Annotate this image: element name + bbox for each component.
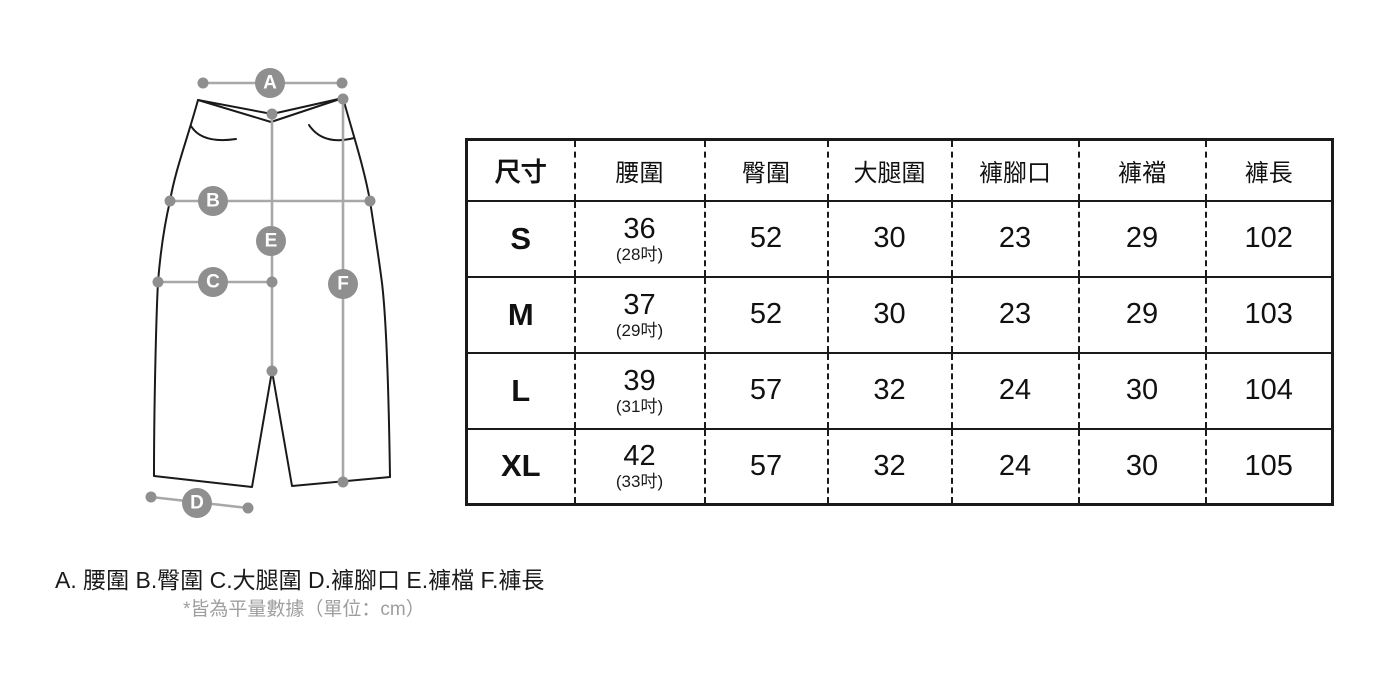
cell-length: 103: [1206, 277, 1333, 353]
cell-waist: 36 (28吋): [575, 201, 705, 277]
cell-waist: 42 (33吋): [575, 429, 705, 505]
measure-endpoint-dot: [337, 78, 348, 89]
marker-d-icon: D: [182, 488, 212, 518]
marker-d-label: D: [190, 493, 204, 514]
measure-endpoint-dot: [165, 196, 176, 207]
measure-endpoint-dot: [153, 277, 164, 288]
cell-waist: 37 (29吋): [575, 277, 705, 353]
cell-hip: 57: [705, 429, 828, 505]
waist-inch-value: (31吋): [576, 397, 704, 416]
measure-endpoint-dot: [146, 492, 157, 503]
cell-hip: 52: [705, 201, 828, 277]
pants-measurement-diagram: A B C D E F: [135, 58, 405, 520]
cell-size: S: [467, 201, 575, 277]
measure-endpoint-dot: [243, 503, 254, 514]
cell-thigh: 32: [828, 429, 952, 505]
marker-a-icon: A: [255, 68, 285, 98]
waist-cm-value: 39: [576, 366, 704, 397]
cell-hip: 57: [705, 353, 828, 429]
cell-crotch: 30: [1079, 353, 1206, 429]
column-header-leg-opening: 褲腳口: [952, 140, 1079, 201]
cell-waist: 39 (31吋): [575, 353, 705, 429]
cell-leg-opening: 23: [952, 277, 1079, 353]
cell-size: M: [467, 277, 575, 353]
table-row-m: M 37 (29吋) 52 30 23 29 103: [467, 277, 1333, 353]
measure-endpoint-dot: [338, 477, 349, 488]
right-pocket-curve: [309, 125, 354, 140]
marker-c-icon: C: [198, 267, 228, 297]
measurement-legend: A. 腰圍 B.臀圍 C.大腿圍 D.褲腳口 E.褲檔 F.褲長: [55, 561, 544, 595]
column-header-hip: 臀圍: [705, 140, 828, 201]
column-header-waist: 腰圍: [575, 140, 705, 201]
table-row-l: L 39 (31吋) 57 32 24 30 104: [467, 353, 1333, 429]
cell-crotch: 29: [1079, 277, 1206, 353]
measure-endpoint-dot: [198, 78, 209, 89]
cell-hip: 52: [705, 277, 828, 353]
cell-length: 102: [1206, 201, 1333, 277]
marker-b-icon: B: [198, 186, 228, 216]
cell-length: 105: [1206, 429, 1333, 505]
size-chart-table: 尺寸 腰圍 臀圍 大腿圍 褲腳口 褲襠 褲長 S 36 (28吋) 52 30 …: [465, 138, 1334, 506]
cell-thigh: 30: [828, 201, 952, 277]
left-pocket-curve: [191, 126, 236, 140]
marker-c-label: C: [206, 272, 220, 293]
measure-endpoint-dot: [365, 196, 376, 207]
cell-leg-opening: 24: [952, 429, 1079, 505]
waist-inch-value: (28吋): [576, 245, 704, 264]
waist-cm-value: 42: [576, 441, 704, 472]
marker-e-label: E: [265, 231, 278, 252]
column-header-crotch: 褲襠: [1079, 140, 1206, 201]
waist-cm-value: 37: [576, 290, 704, 321]
cell-size: XL: [467, 429, 575, 505]
marker-f-icon: F: [328, 269, 358, 299]
marker-f-label: F: [337, 274, 349, 295]
cell-thigh: 30: [828, 277, 952, 353]
cell-leg-opening: 23: [952, 201, 1079, 277]
column-header-length: 褲長: [1206, 140, 1333, 201]
table-row-xl: XL 42 (33吋) 57 32 24 30 105: [467, 429, 1333, 505]
measure-endpoint-dot: [338, 94, 349, 105]
marker-a-label: A: [263, 73, 277, 94]
column-header-size: 尺寸: [467, 140, 575, 201]
cell-crotch: 29: [1079, 201, 1206, 277]
cell-leg-opening: 24: [952, 353, 1079, 429]
column-header-thigh: 大腿圍: [828, 140, 952, 201]
unit-note: *皆為平量數據（單位：cm）: [183, 594, 425, 621]
size-chart-page: A B C D E F: [0, 0, 1400, 700]
cell-thigh: 32: [828, 353, 952, 429]
waist-inch-value: (29吋): [576, 321, 704, 340]
cell-crotch: 30: [1079, 429, 1206, 505]
marker-e-icon: E: [256, 226, 286, 256]
measure-endpoint-dot: [267, 366, 278, 377]
cell-size: L: [467, 353, 575, 429]
marker-b-label: B: [206, 191, 220, 212]
measure-endpoint-dot: [267, 277, 278, 288]
measure-endpoint-dot: [267, 109, 278, 120]
cell-length: 104: [1206, 353, 1333, 429]
table-row-s: S 36 (28吋) 52 30 23 29 102: [467, 201, 1333, 277]
waist-inch-value: (33吋): [576, 472, 704, 491]
header-row: 尺寸 腰圍 臀圍 大腿圍 褲腳口 褲襠 褲長: [467, 140, 1333, 201]
waist-cm-value: 36: [576, 214, 704, 245]
